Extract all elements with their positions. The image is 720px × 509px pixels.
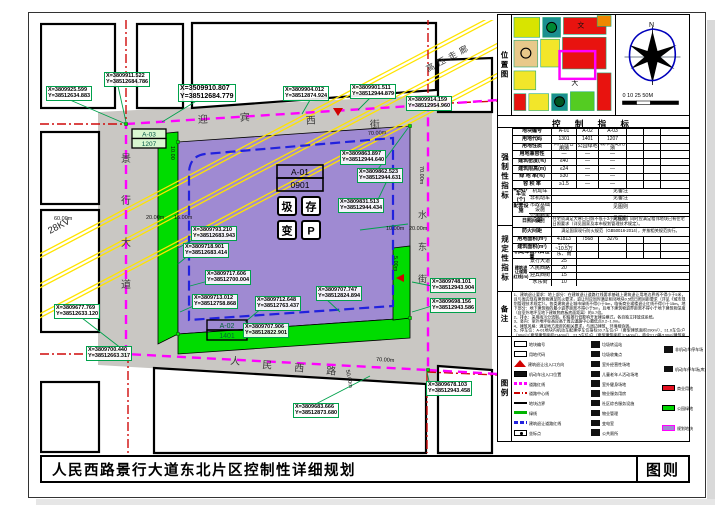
coordinate-label: X=3809862.523Y=38512944.631 <box>357 168 403 183</box>
north-label: N <box>649 22 654 29</box>
legend-item-label: 社区综合服务设施 <box>602 400 634 406</box>
legend-item: 物业管理 <box>589 408 661 417</box>
legend-item-label: 垃圾收集点 <box>602 351 622 357</box>
notes-text: 1、建筑退让要求：地上部分：在建筑退让道路红线要求基础上建筑退让用地边界线不得小… <box>512 292 687 336</box>
location-section-label: 位置图 <box>498 15 512 116</box>
block-a03-land: 1207 <box>142 141 157 148</box>
coordinate-label: X=3809831.513Y=38512944.434 <box>338 198 384 213</box>
legend-symbol-s-tri <box>514 360 526 367</box>
road-name-left: 大 <box>121 236 131 249</box>
legend-item: 地块编号 <box>514 340 587 349</box>
dimension-label: 70.00m <box>418 166 424 185</box>
table-cell: 建筑退让道路红线(m) <box>513 259 529 286</box>
coordinate-label: X=3809713.012Y=38512758.868 <box>192 294 238 309</box>
dimension-label: 70.00m <box>376 357 395 364</box>
facility-icon: 圾 <box>282 201 294 214</box>
notes-section: 备注 1、建筑退让要求：地上部分：在建筑退让道路红线要求基础上建筑退让用地边界线… <box>497 291 690 337</box>
coordinate-label: X=3809677.769Y=38512633.120 <box>54 304 100 319</box>
legend-item-label: 垃圾转运站 <box>602 341 622 347</box>
mandatory-indicators-label: 强制性指标 <box>498 128 512 227</box>
block-a01-land: 0901 <box>291 180 310 190</box>
coordinate-label: X=3809717.606Y=38512700.004 <box>205 270 251 285</box>
legend-item-label: 物业服务用房 <box>602 390 626 396</box>
indicator-table: 地块编号A-01A-02A-03用地代码130114011207用地性质商住混合… <box>512 128 689 292</box>
legend-item: 社区综合服务设施 <box>589 399 661 408</box>
table-row: 日照间距住宅须满足大寒日日照不低于2小时标准，同时应满足相邻地块已有住宅日照要求… <box>513 216 689 227</box>
table-subrow: 迎宾西街15 <box>529 272 689 279</box>
legend-item-label: 变电室 <box>602 420 614 426</box>
coordinate-label: X=3809925.599Y=38512634.883 <box>46 86 92 101</box>
legend-item-label: 公共厕所 <box>602 429 618 435</box>
note-line: 5、停车位：A-01地块内机动车配建停车位指标≥0.7车位/户（套型建筑面积≤9… <box>514 329 686 336</box>
table-cell: 市政基础设施 <box>529 203 551 214</box>
green-strip-west <box>158 132 178 344</box>
facility-icon: P <box>307 226 314 238</box>
sheet-type-label: 图则 <box>636 457 688 481</box>
road-name-right: 街 <box>418 273 427 284</box>
table-cell: 10 <box>551 280 576 286</box>
legend-column: 非机动车停车场机动车停车场(库)商业用地公园绿地规划地块 <box>662 340 720 438</box>
legend-item: 道路红线 <box>514 379 587 388</box>
legend-item-label: 地块编号 <box>529 341 545 347</box>
legend-item: 地块边界 <box>514 399 587 408</box>
legend-symbol-s-sq <box>591 390 600 397</box>
table-row: 容 积 率≥1.5—— <box>513 180 689 188</box>
legend-symbol-s-sq <box>591 361 600 368</box>
road-name-top: 街 <box>369 117 380 131</box>
legend-item: 道路中心线 <box>514 389 587 398</box>
legend-symbol-s-sq <box>591 429 600 436</box>
note-line: 1、建筑退让要求：地上部分：在建筑退让道路红线要求基础上建筑退让用地边界线不得小… <box>514 293 686 315</box>
dimension-label: 70.00m <box>368 130 387 137</box>
legend-item: 机动车出入口位置 <box>514 369 587 378</box>
legend-symbol-s-fillG <box>662 405 675 411</box>
right-panel: 位置图 文 大 <box>497 15 690 442</box>
legend-symbol-s-sq <box>664 346 673 353</box>
coordinate-label: X=3809901.511Y=38512944.879 <box>350 84 396 99</box>
coordinate-label: X=3809700.440Y=38512663.317 <box>86 346 132 361</box>
coordinate-label: X=3809904.012Y=38512874.924 <box>283 86 329 101</box>
legend-item: 非机动车停车场 <box>662 345 720 354</box>
table-cell: 配建停车位(个) <box>513 189 529 202</box>
road-name-bottom: 民 <box>262 359 273 372</box>
road-name-right: 东 <box>418 241 427 252</box>
table-title: 控 制 指 标 <box>498 116 689 127</box>
table-subrow: 水东街10 <box>529 279 689 286</box>
road-name-right: 水 <box>418 209 427 220</box>
table-row: 配建停车位(个)机动车见备注非机动车见备注 <box>513 188 689 202</box>
table-row: 配套设施市政基础设施见图则公用服务设施见图则 <box>513 202 689 216</box>
table-row: 建筑密度(%)≤40—— <box>513 158 689 166</box>
legend-symbol-s-sq <box>591 410 600 417</box>
dimension-label: 15.00m <box>174 215 193 221</box>
legend-symbol-s-lineB <box>514 421 527 424</box>
road-name-left: 景 <box>121 153 131 165</box>
legend-symbol-s-pt <box>514 430 527 436</box>
legend-item: 绿线 <box>514 408 587 417</box>
dimension-label: 10.00 <box>169 146 175 160</box>
table-cell: 日照间距 <box>513 217 551 227</box>
legend-item-label: 物业管理 <box>602 410 618 416</box>
coordinate-label: X=3809712.648Y=38512763.437 <box>255 296 301 311</box>
table-row: 建筑退让道路红线(m)景行大道25人民西路20迎宾西街15水东街10 <box>513 258 689 286</box>
legend-item: 建筑退让出入口方向 <box>514 359 587 368</box>
legend-label: 图例 <box>498 337 512 441</box>
table-row: 建筑面积(m²)8.4万~10.5万 <box>513 243 689 251</box>
road-name-top: 迎 <box>198 113 209 126</box>
road-name-top: 宾 <box>239 110 250 124</box>
legend-item-label: 室外健身场地 <box>602 380 626 386</box>
legend-symbol-s-fillP <box>662 425 675 431</box>
table-row: 用地面积(m²)4181375683276 <box>513 236 689 244</box>
road-name-left: 道 <box>121 278 131 291</box>
legend-item-label: 道路中心线 <box>529 390 549 396</box>
table-cell: 防火间距 <box>513 228 551 236</box>
dimension-label: 60.00m <box>54 216 73 222</box>
legend-symbol-s-gate <box>514 371 527 377</box>
legend-item: 用地代码 <box>514 350 587 359</box>
compass-box: N 0 10 25 50M <box>616 15 689 115</box>
table-row: 建筑限高(m)≤24—— <box>513 165 689 173</box>
road-name-left: 行 <box>121 194 131 207</box>
legend-item-label: 机动车出入口位置 <box>529 371 561 377</box>
coordinate-label: X=3809707.906Y=38512822.901 <box>243 323 289 338</box>
table-cell <box>576 280 689 286</box>
block-a01-code: A-01 <box>291 167 309 177</box>
legend-item: 商业用地 <box>662 384 720 393</box>
table-cell: 满足国家现行防火规范（GB50016-2014），并按相关规范执行。 <box>551 228 689 236</box>
table-row: 绿 地 率(%)≥30—— <box>513 173 689 181</box>
table-cell: 见图则 <box>551 203 689 214</box>
legend-item-label: 非机动车停车场 <box>675 346 703 352</box>
location-map: 文 大 <box>512 15 616 115</box>
title-bar: 人民西路景行大道东北片区控制性详细规划 图则 <box>40 455 690 483</box>
block-a02-code: A-02 <box>220 323 235 330</box>
legend-item: 室外经营性场地 <box>589 359 661 368</box>
facility-icon: 存 <box>306 200 317 214</box>
coordinate-label: X=3809678.103Y=38512943.458 <box>426 381 472 396</box>
legend-item-label: 用地代码 <box>529 351 545 357</box>
legend-symbol-s-fillR <box>662 385 675 391</box>
legend-symbol-s-sq <box>591 371 600 378</box>
legend-symbol-s-sq <box>591 380 600 387</box>
legend-section: 图例 地块编号用地代码建筑退让出入口方向机动车出入口位置道路红线道路中心线地块边… <box>497 336 690 442</box>
block-a02-land: 1401 <box>219 333 235 340</box>
coordinate-label: X=3809718.901Y=38512683.414 <box>183 243 229 258</box>
coordinate-label: X=3809683.666Y=38512873.680 <box>293 403 339 418</box>
table-subrow: 人民西路20 <box>529 265 689 272</box>
location-section: 位置图 文 大 <box>497 14 690 117</box>
coordinate-label: X=3809793.210Y=38512683.943 <box>191 226 237 241</box>
legend-symbol-s-lineK <box>514 402 527 404</box>
coordinate-label: X=3809748.101Y=38512943.904 <box>430 278 476 293</box>
table-cell: 住宅须满足大寒日日照不低于2小时标准，同时应满足相邻地块已有住宅日照要求（详见国… <box>551 217 689 227</box>
legend-item-label: 室外经营性场地 <box>602 361 630 367</box>
road-name-bottom: 西 <box>294 363 305 375</box>
table-cell: 水东街 <box>529 280 551 286</box>
scale-bar <box>623 101 679 105</box>
svg-text:文: 文 <box>577 20 584 29</box>
coordinate-label: X=3809863.897Y=38512944.640 <box>340 150 386 165</box>
page-shadow-bottom <box>36 499 715 505</box>
legend-item-label: 坐标点 <box>529 429 541 435</box>
legend-item-label: 道路红线 <box>529 380 545 386</box>
legend-column: 地块编号用地代码建筑退让出入口方向机动车出入口位置道路红线道路中心线地块边界绿线… <box>514 340 587 438</box>
legend-symbol-s-lineR <box>514 392 527 394</box>
table-subrow: 非机动车见备注 <box>529 195 689 202</box>
table-row: 防火间距满足国家现行防火规范（GB50016-2014），并按相关规范执行。 <box>513 227 689 236</box>
legend-symbol-s-sq <box>664 366 673 373</box>
legend-item-label: 儿童老年人活动场地 <box>602 371 638 377</box>
table-row: 地块编号A-01A-02A-03 <box>513 128 689 136</box>
legend-symbol-s-sq <box>591 341 600 348</box>
scale-ticks: 0 10 25 50M <box>623 93 654 99</box>
legend-item: 规划地块 <box>662 423 720 432</box>
dimension-label: 20.00m <box>409 226 428 232</box>
table-cell: 配套设施 <box>513 203 529 216</box>
table-subrow: 市政基础设施见图则 <box>529 203 689 214</box>
legend-symbol-s-code <box>514 341 527 347</box>
legend-item: 垃圾转运站 <box>589 340 661 349</box>
legend-column: 垃圾转运站垃圾收集点室外经营性场地儿童老年人活动场地室外健身场地物业服务用房社区… <box>589 340 661 438</box>
table-row: 机动车出入口位置东、南 <box>513 251 689 259</box>
legend-symbol-s-lineG <box>514 411 527 414</box>
notes-label: 备注 <box>498 292 512 336</box>
plan-title: 人民西路景行大道东北片区控制性详细规划 <box>42 457 636 481</box>
legend-item: 儿童老年人活动场地 <box>589 369 661 378</box>
road-name-top: 西 <box>306 115 317 127</box>
legend-item: 机动车停车场(库) <box>662 364 720 373</box>
legend-item: 物业服务用房 <box>589 389 661 398</box>
legend-item: 变电室 <box>589 418 661 427</box>
coordinate-label: X=3509910.807Y=38512684.779 <box>178 84 236 102</box>
coordinate-label: X=3809698.156Y=38512943.586 <box>430 298 476 313</box>
legend-symbol-s-sq <box>591 351 600 358</box>
legend-item: 建筑退让道路红线 <box>514 418 587 427</box>
legend-item: 坐标点 <box>514 428 587 437</box>
legend-symbol-s-sq <box>591 420 600 427</box>
road-name-bottom: 人 <box>230 355 241 368</box>
legend-item: 公园绿地 <box>662 404 720 413</box>
legend-item: 室外健身场地 <box>589 379 661 388</box>
facility-icon: 变 <box>282 224 293 238</box>
table-row: 用地代码130114011207 <box>513 135 689 143</box>
table-row: 用地兼容性——— <box>513 150 689 158</box>
legend-item-label: 地块边界 <box>529 400 545 406</box>
dimension-label: 10.00m <box>386 226 405 232</box>
coordinate-label: X=3809911.522Y=38512684.786 <box>104 72 150 87</box>
coordinate-label: X=3809914.159Y=38512954.960 <box>406 96 452 111</box>
table-row: 用地性质商住混合用地公园绿地城市道路用地 <box>513 143 689 151</box>
legend-symbol-s-code <box>514 351 527 357</box>
legend-item: 垃圾收集点 <box>589 350 661 359</box>
block-a03-code: A-03 <box>142 132 156 139</box>
legend-columns: 地块编号用地代码建筑退让出入口方向机动车出入口位置道路红线道路中心线地块边界绿线… <box>512 337 720 441</box>
legend-item-label: 机动车停车场(库) <box>675 366 706 372</box>
legend-item: 公共厕所 <box>589 428 661 437</box>
legend-item-label: 建筑退让道路红线 <box>529 420 561 426</box>
table-title-section: 控 制 指 标 <box>497 115 690 128</box>
legend-item-label: 建筑退让出入口方向 <box>528 361 564 367</box>
legend-symbol-s-sq <box>591 400 600 407</box>
dimension-label: 5.00m <box>392 256 398 272</box>
road-name-bottom: 路 <box>326 364 337 378</box>
legend-item-label: 商业用地 <box>677 385 693 391</box>
legend-symbol-s-lineM <box>514 382 527 385</box>
legend-item-label: 规划地块 <box>677 425 693 431</box>
legend-item-label: 公园绿地 <box>677 405 693 411</box>
dimension-label: 20.00m <box>146 215 165 221</box>
prescriptive-indicators-label: 规定性指标 <box>498 226 512 291</box>
legend-item-label: 绿线 <box>529 410 537 416</box>
coordinate-label: X=3809707.747Y=38512824.894 <box>316 286 362 301</box>
indicator-table-section: 强制性指标 规定性指标 地块编号A-01A-02A-03用地代码13011401… <box>497 127 690 293</box>
